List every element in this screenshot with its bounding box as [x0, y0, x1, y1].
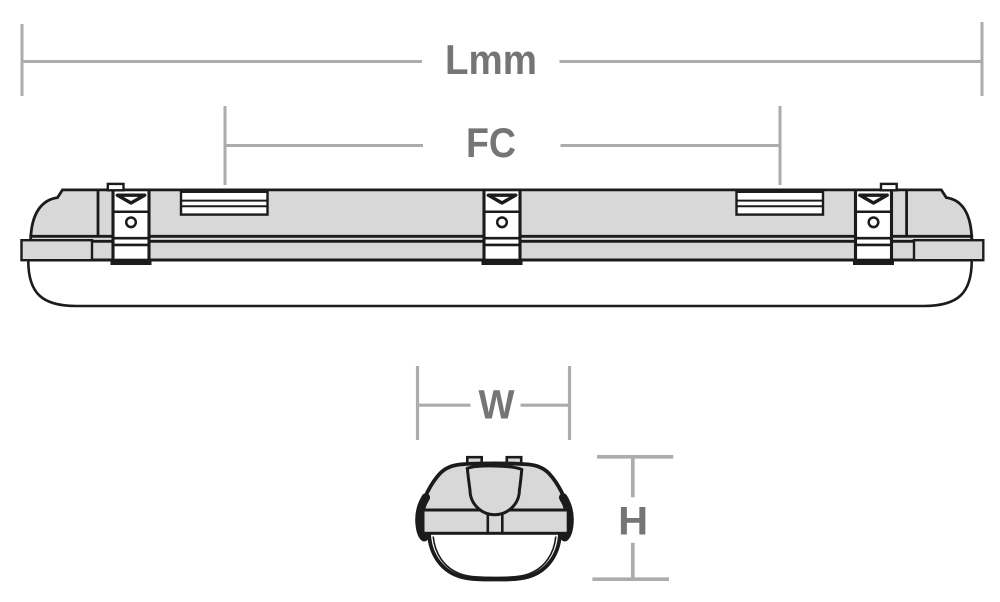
svg-text:H: H — [618, 500, 648, 544]
svg-text:W: W — [479, 382, 515, 428]
svg-text:Lmm: Lmm — [445, 36, 537, 83]
svg-text:FC: FC — [466, 119, 516, 166]
